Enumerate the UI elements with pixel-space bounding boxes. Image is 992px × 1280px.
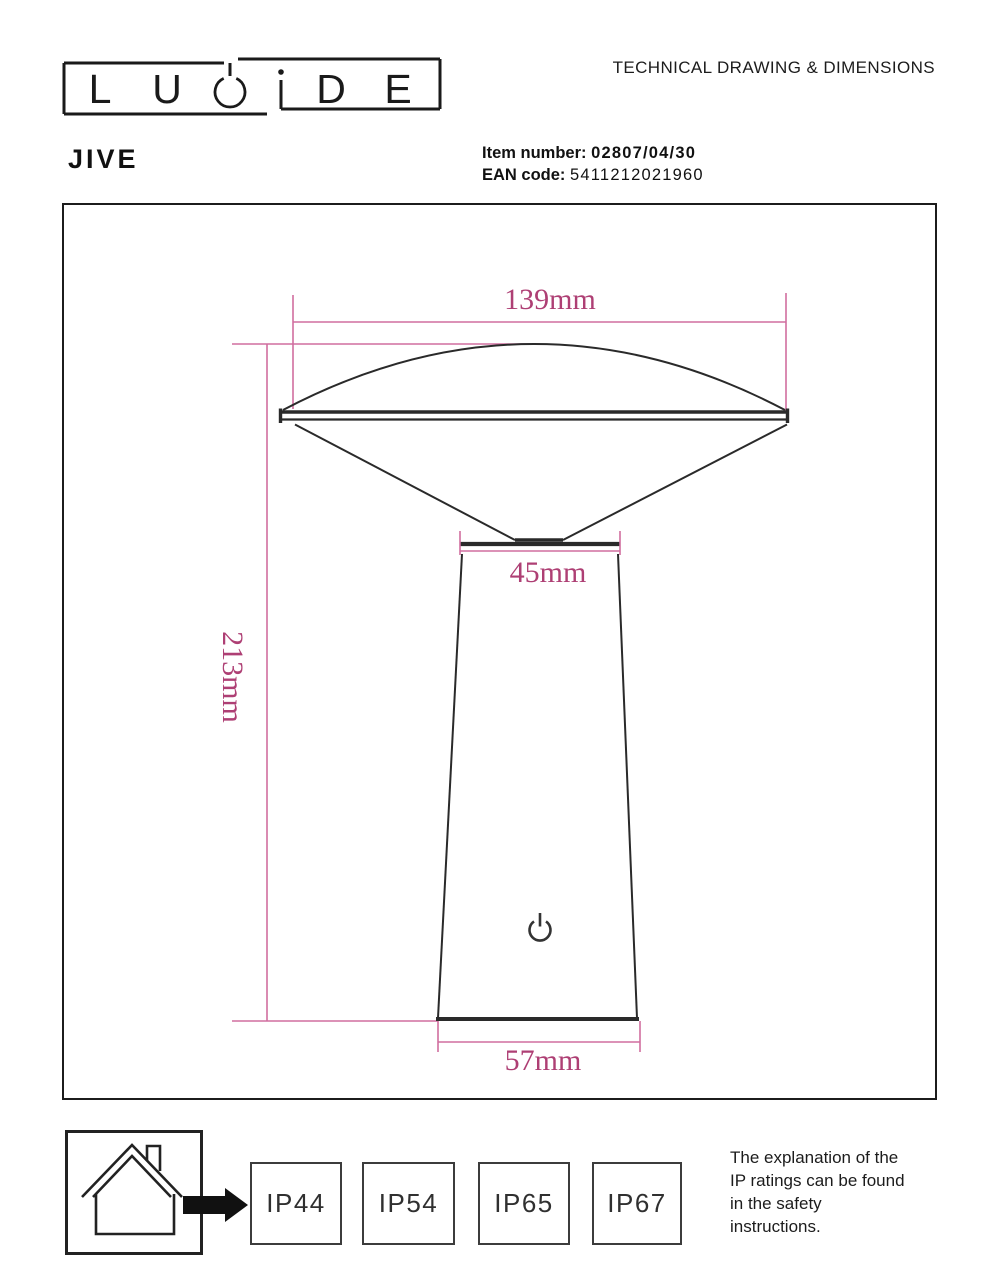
product-meta: Item number: 02807/04/30 EAN code: 54112…: [482, 142, 704, 186]
dimension-top-width: 139mm: [293, 283, 786, 411]
ip-rating-badge-ip54: IP54: [362, 1162, 455, 1245]
logo-letter: E: [384, 66, 411, 112]
lucide-logo-i-dot: [278, 69, 284, 75]
power-icon: [530, 913, 551, 941]
logo-letter: L: [89, 66, 112, 112]
lucide-logo-letter-c: [215, 78, 245, 107]
ean-row: EAN code: 5411212021960: [482, 164, 704, 186]
dimension-base-width-label: 57mm: [505, 1044, 582, 1077]
lamp-body: [436, 554, 639, 1019]
ip-rating-badge-ip67: IP67: [592, 1162, 682, 1245]
logo-letter: D: [316, 66, 346, 112]
house-indoor-icon: [68, 1133, 200, 1252]
document-title: TECHNICAL DRAWING & DIMENSIONS: [613, 58, 935, 78]
ip-rating-badge-ip65: IP65: [478, 1162, 570, 1245]
ip-note-line: in the safety: [730, 1192, 905, 1215]
ip-note-line: The explanation of the: [730, 1146, 905, 1169]
item-number-label: Item number:: [482, 144, 587, 162]
item-number-row: Item number: 02807/04/30: [482, 142, 704, 164]
lamp-dome-outline: [283, 344, 785, 410]
ip-note-line: instructions.: [730, 1215, 905, 1238]
technical-drawing-page: L U D E TECHNICAL DRAWING & DIMENSIONS J…: [0, 0, 992, 1280]
lucide-logo: L U D E: [62, 55, 442, 117]
arrow-right-icon: [183, 1187, 249, 1223]
dimension-top-width-label: 139mm: [504, 283, 596, 316]
lamp-shade: [279, 344, 789, 544]
ip-rating-badge-ip44: IP44: [250, 1162, 342, 1245]
lamp-technical-drawing: 139mm 213mm: [64, 205, 935, 1098]
dimension-neck-width-label: 45mm: [510, 556, 587, 589]
product-name: JIVE: [68, 144, 139, 175]
ean-label: EAN code:: [482, 166, 565, 184]
logo-letter: U: [152, 66, 182, 112]
ip-note: The explanation of the IP ratings can be…: [730, 1146, 905, 1238]
dimension-height: 213mm: [216, 344, 540, 1021]
ean-value: 5411212021960: [570, 166, 704, 184]
dimension-base-width: 57mm: [438, 1021, 640, 1077]
item-number-value: 02807/04/30: [591, 144, 696, 162]
ip-note-line: IP ratings can be found: [730, 1169, 905, 1192]
drawing-frame: 139mm 213mm: [62, 203, 937, 1100]
dimension-height-label: 213mm: [216, 631, 249, 723]
